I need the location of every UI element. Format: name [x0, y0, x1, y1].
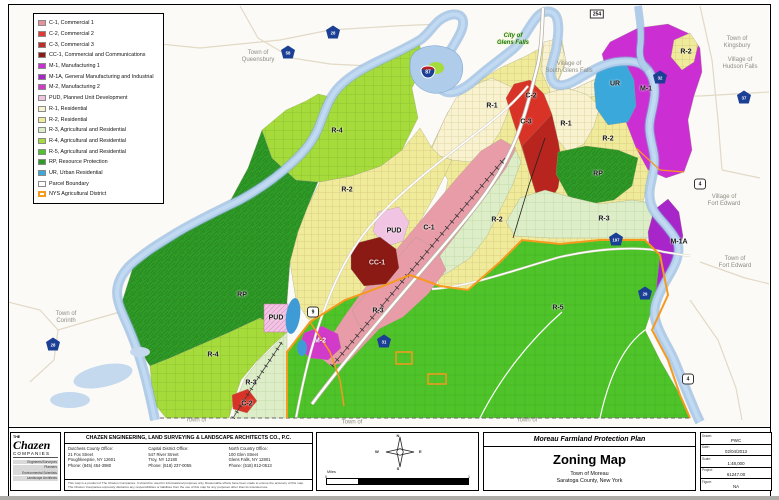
legend-item: NYS Agricultural District [38, 189, 160, 200]
office-name: Capital District Office: [148, 446, 228, 452]
info-field-value: 61247.00 [701, 472, 771, 477]
firm-offices: Dutchess County Office: 21 Fox Street Po… [65, 444, 312, 469]
legend-item-label: C-3, Commercial 3 [49, 42, 94, 48]
legend-item: R-5, Agricultural and Residential [38, 146, 160, 157]
route-shield-icon: 4 [694, 179, 706, 190]
legend-item-label: RP, Resource Protection [49, 159, 108, 165]
town-name: Town of Moreau [484, 471, 695, 478]
legend-item-label: R-4, Agricultural and Residential [49, 138, 126, 144]
office: Dutchess County Office: 21 Fox Street Po… [68, 446, 148, 469]
page-edge [0, 496, 779, 500]
zone-label: R-1 [486, 103, 497, 110]
office-phone: Phone: (518) 237-0055 [148, 463, 228, 469]
zone-label: R-1 [560, 121, 571, 128]
legend-item: R-1, Residential [38, 104, 160, 115]
info-field: Drawn: PWC [701, 433, 771, 445]
legend-item-label: M-1, Manufacturing 1 [49, 63, 100, 69]
info-field: Project: 61247.00 [701, 468, 771, 480]
county-name: Saratoga County, New York [484, 478, 695, 485]
logo-tagline: Planners [13, 465, 58, 470]
office-name: Dutchess County Office: [68, 446, 148, 452]
logo-name: Chazen [13, 439, 58, 451]
legend-swatch [38, 149, 46, 155]
firm-address-block: CHAZEN ENGINEERING, LAND SURVEYING & LAN… [64, 432, 313, 491]
compass-rose-icon [383, 435, 417, 469]
legend-swatch [38, 74, 46, 80]
chazen-logo: THE Chazen COMPANIES Engineers/Surveyors… [10, 432, 61, 491]
legend-swatch [38, 191, 46, 197]
legend-swatch [38, 106, 46, 112]
zone-label: R-2 [602, 136, 613, 143]
info-field: Date: 02/04/2013 [701, 445, 771, 457]
zone-label: M-1 [640, 86, 652, 93]
legend-swatch [38, 127, 46, 133]
office-phone: Phone: (518) 812-0513 [229, 463, 309, 469]
wetland [50, 392, 90, 408]
place-label: Village of Hudson Falls [722, 57, 757, 71]
zone-label: M-2 [314, 338, 326, 345]
zone-label: R-3 [598, 216, 609, 223]
legend-item: RP, Resource Protection [38, 157, 160, 168]
compass-e: E [419, 449, 422, 454]
pond [297, 340, 307, 356]
legend-item: M-2, Manufacturing 2 [38, 82, 160, 93]
legend-item-label: Parcel Boundary [49, 181, 89, 187]
zone-label: R-4 [207, 352, 218, 359]
legend-item: M-1A, General Manufacturing and Industri… [38, 71, 160, 82]
scale-bar [326, 478, 469, 485]
legend-item-label: M-2, Manufacturing 2 [49, 84, 100, 90]
legend-item-label: R-5, Agricultural and Residential [49, 149, 126, 155]
zone-label: UR [610, 81, 620, 88]
place-label: City of Glens Falls [497, 33, 529, 47]
legend-swatch [38, 138, 46, 144]
legend-swatch [38, 170, 46, 176]
zone-label: R-2 [680, 49, 691, 56]
compass-w: W [375, 449, 379, 454]
legend-item: R-2, Residential [38, 114, 160, 125]
logo-tagline: Engineers/Surveyors [13, 460, 58, 465]
legend-item: C-1, Commercial 1 [38, 18, 160, 29]
route-shield-icon: 254 [590, 10, 604, 19]
title-block: Moreau Farmland Protection Plan Zoning M… [483, 432, 696, 491]
legend-item: C-3, Commercial 3 [38, 39, 160, 50]
legend-item-label: C-1, Commercial 1 [49, 20, 94, 26]
legend-item: R-4, Agricultural and Residential [38, 136, 160, 147]
place-label: Town of Queensbury [242, 50, 275, 64]
logo-tagline: Environmental Scientists [13, 470, 58, 475]
zone-label: C-2 [525, 93, 536, 100]
zone-label: R-3 [372, 308, 383, 315]
zone-label: R-3 [245, 380, 256, 387]
info-field-value: 02/04/2013 [701, 449, 771, 454]
legend-item-label: CC-1, Commercial and Communications [49, 52, 145, 58]
place-label: Village of Fort Edward [708, 194, 741, 208]
legend-item: UR, Urban Residential [38, 168, 160, 179]
legend-item-label: PUD, Planned Unit Development [49, 95, 128, 101]
legend-swatch [38, 63, 46, 69]
zone-label: C-3 [520, 119, 531, 126]
place-label: Town of Kingsbury [724, 36, 751, 50]
compass-scale-block: N E S W Miles 0 1 [316, 432, 479, 491]
legend-item-label: UR, Urban Residential [49, 170, 103, 176]
info-field-value: 1:48,000 [701, 461, 771, 466]
legend-item: PUD, Planned Unit Development [38, 93, 160, 104]
legend-item-label: NYS Agricultural District [49, 191, 106, 197]
info-field-value: PWC [701, 438, 771, 443]
legend-swatch [38, 42, 46, 48]
map-footer-divider [8, 427, 770, 428]
route-shield-icon: 4 [682, 374, 694, 385]
office-name: North Country Office: [229, 446, 309, 452]
place-label: Town of Corinth [56, 311, 77, 325]
disclaimer-line2: The Chazen Companies expressly disclaims… [68, 485, 309, 489]
drawing-info-block: Drawn: PWC Date: 02/04/2013 Scale: 1:48,… [700, 432, 772, 491]
logo-tagline: Landscape Architects [13, 476, 58, 481]
legend-swatch [38, 159, 46, 165]
info-field: Scale: 1:48,000 [701, 456, 771, 468]
compass-n: N [397, 433, 400, 438]
legend-swatch [38, 181, 46, 187]
legend-swatch [38, 20, 46, 26]
map-title: Zoning Map [484, 447, 695, 467]
disclaimer: This map is a product of The Chazen Comp… [65, 479, 312, 490]
legend-item-label: R-2, Residential [49, 117, 87, 123]
place-label: Village of South Glens Falls [545, 61, 592, 75]
zone-label: R-2 [341, 187, 352, 194]
office: North Country Office: 100 Glen Street Gl… [229, 446, 309, 469]
legend-item-label: R-3, Agricultural and Residential [49, 127, 126, 133]
firm-name: CHAZEN ENGINEERING, LAND SURVEYING & LAN… [65, 433, 312, 444]
zone-label: RP [237, 292, 247, 299]
scale-units-label: Miles [327, 470, 336, 474]
legend-swatch [38, 95, 46, 101]
info-field: Figure: NA [701, 479, 771, 490]
zone-label: PUD [387, 228, 402, 235]
logo-companies: COMPANIES [13, 451, 58, 458]
compass-s: S [397, 466, 400, 471]
legend-item: CC-1, Commercial and Communications [38, 50, 160, 61]
place-label: Town of Fort Edward [719, 256, 752, 270]
legend-item: M-1, Manufacturing 1 [38, 61, 160, 72]
zone-label: CC-1 [369, 260, 385, 267]
map-sheet: C-1, Commercial 1 C-2, Commercial 2 C-3,… [0, 0, 779, 500]
place-label: Town of [342, 419, 363, 426]
info-field-value: NA [701, 484, 771, 489]
legend-item-label: C-2, Commercial 2 [49, 31, 94, 37]
office-phone: Phone: (845) 454-3980 [68, 463, 148, 469]
legend-item-label: R-1, Residential [49, 106, 87, 112]
zone-label: C-1 [423, 225, 434, 232]
zone-label: R-4 [331, 128, 342, 135]
wetland [130, 347, 150, 357]
zone-label: M-1A [670, 239, 687, 246]
place-label: Town of [186, 417, 207, 424]
legend-swatch [38, 84, 46, 90]
zone-label: C-2 [241, 401, 252, 408]
place-label: Town of [517, 417, 538, 424]
logo-tags: Engineers/SurveyorsPlannersEnvironmental… [13, 460, 58, 481]
legend-item: C-2, Commercial 2 [38, 29, 160, 40]
legend-swatch [38, 31, 46, 37]
legend: C-1, Commercial 1 C-2, Commercial 2 C-3,… [33, 13, 164, 204]
zone-label: R-2 [491, 217, 502, 224]
plan-title: Moreau Farmland Protection Plan [484, 433, 695, 447]
legend-item-label: M-1A, General Manufacturing and Industri… [49, 74, 154, 80]
route-shield-icon: 9 [307, 307, 319, 318]
legend-swatch [38, 117, 46, 123]
legend-item: Parcel Boundary [38, 178, 160, 189]
legend-item: R-3, Agricultural and Residential [38, 125, 160, 136]
zone-label: R-5 [552, 305, 563, 312]
legend-swatch [38, 52, 46, 58]
zone-label: PUD [269, 315, 284, 322]
zone-label: RP [593, 171, 603, 178]
office: Capital District Office: 547 River Stree… [148, 446, 228, 469]
